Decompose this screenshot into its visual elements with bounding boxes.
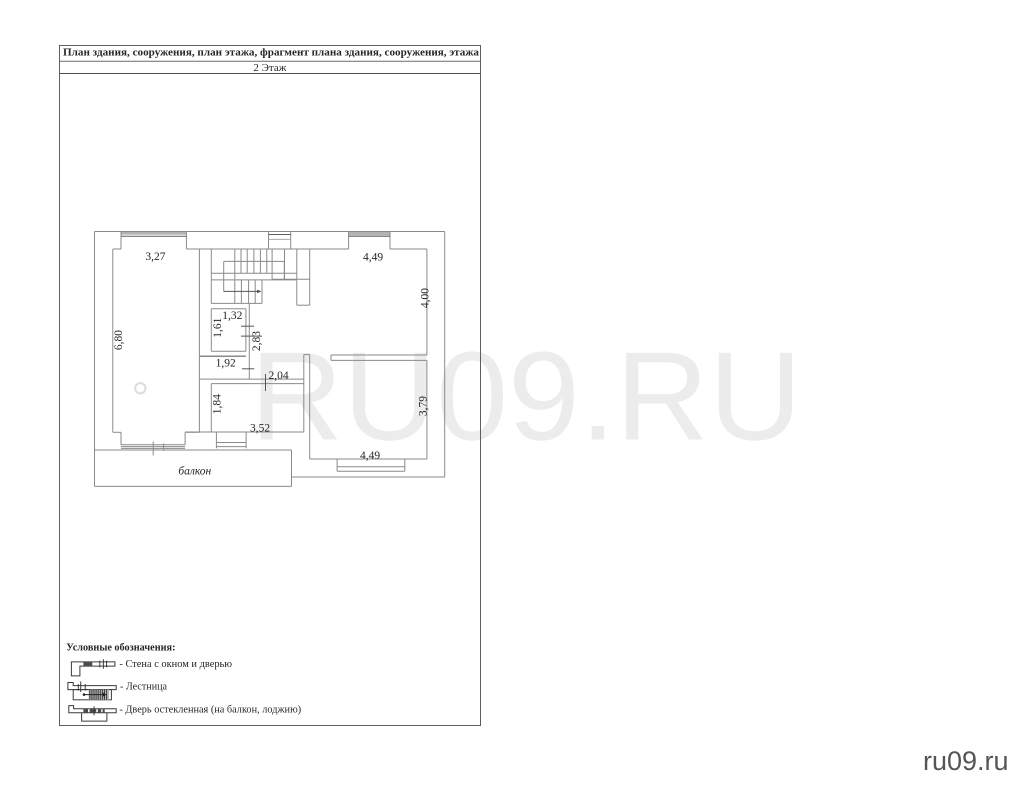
svg-text:Условные обозначения:: Условные обозначения: <box>66 642 175 653</box>
svg-text:- Лестница: - Лестница <box>120 680 167 692</box>
svg-text:4,49: 4,49 <box>363 252 383 264</box>
svg-text:- Дверь остекленная (на балкон: - Дверь остекленная (на балкон, лоджию) <box>119 703 301 715</box>
svg-text:1,32: 1,32 <box>222 310 242 322</box>
svg-text:4,00: 4,00 <box>419 288 431 308</box>
svg-text:1,84: 1,84 <box>212 394 224 414</box>
svg-text:2,04: 2,04 <box>269 370 289 382</box>
svg-text:RU09.RU: RU09.RU <box>250 326 802 467</box>
svg-text:1,92: 1,92 <box>216 357 236 369</box>
svg-text:балкон: балкон <box>178 465 211 477</box>
svg-text:3,27: 3,27 <box>145 251 165 263</box>
svg-text:4,49: 4,49 <box>360 450 380 462</box>
svg-text:2,83: 2,83 <box>251 331 263 351</box>
svg-text:1,61: 1,61 <box>212 317 224 337</box>
svg-text:План здания, сооружения, план: План здания, сооружения, план этажа, фра… <box>63 46 479 58</box>
svg-text:6,80: 6,80 <box>113 330 125 350</box>
svg-text:2 Этаж: 2 Этаж <box>253 62 286 74</box>
svg-text:ru09.ru: ru09.ru <box>923 746 1009 776</box>
svg-text:3,52: 3,52 <box>250 423 270 435</box>
svg-text:3,79: 3,79 <box>418 396 430 416</box>
svg-text:- Стена с окном и дверью: - Стена с окном и дверью <box>119 658 232 670</box>
